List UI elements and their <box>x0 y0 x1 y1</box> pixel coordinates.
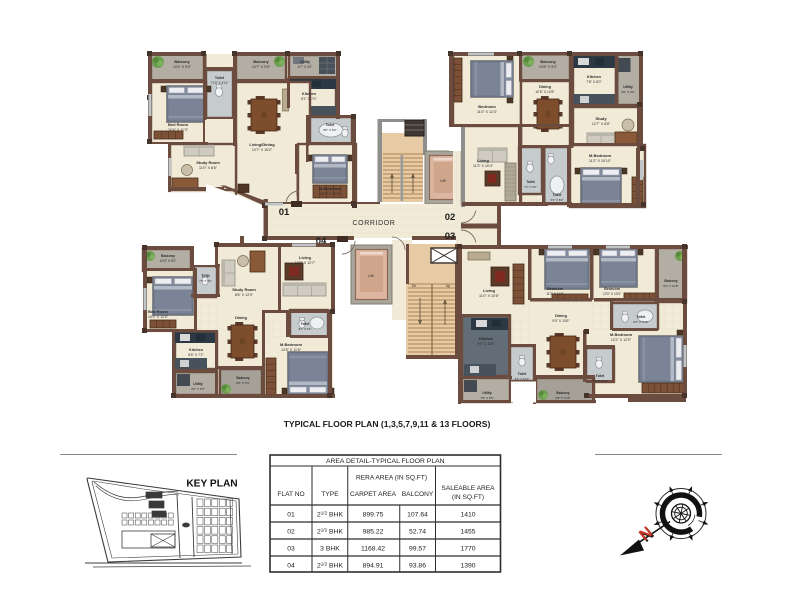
svg-text:3 BHK: 3 BHK <box>320 546 340 553</box>
svg-text:Living: Living <box>483 288 495 293</box>
svg-text:10'8" X 5'0": 10'8" X 5'0" <box>539 65 558 69</box>
svg-text:10'4" X 11'3": 10'4" X 11'3" <box>168 128 189 132</box>
svg-text:9'0" X 13'6": 9'0" X 13'6" <box>552 319 570 323</box>
svg-text:8'1" X 7'0": 8'1" X 7'0" <box>301 97 317 101</box>
svg-text:Bed Room: Bed Room <box>168 122 188 127</box>
svg-text:985.22: 985.22 <box>363 529 384 536</box>
svg-text:6'7" X 4'0": 6'7" X 4'0" <box>298 65 312 69</box>
svg-text:Toilet: Toilet <box>201 274 210 278</box>
svg-text:11'0" X 10'6": 11'0" X 10'6" <box>479 294 500 298</box>
svg-text:7'0" X 5'0": 7'0" X 5'0" <box>199 279 212 283</box>
svg-text:Up: Up <box>446 284 451 288</box>
svg-text:Utility: Utility <box>482 391 492 395</box>
svg-text:03: 03 <box>287 546 295 553</box>
svg-text:CARPET AREA: CARPET AREA <box>350 491 397 498</box>
svg-text:107.64: 107.64 <box>407 512 428 519</box>
svg-text:894.91: 894.91 <box>363 563 384 570</box>
svg-text:01: 01 <box>279 207 290 218</box>
svg-text:7'8" X 8'0": 7'8" X 8'0" <box>586 80 602 84</box>
svg-text:1390: 1390 <box>460 563 475 570</box>
svg-text:Dn: Dn <box>412 284 417 288</box>
svg-text:11'2" X 10'10": 11'2" X 10'10" <box>589 159 612 163</box>
svg-text:1770: 1770 <box>460 546 475 553</box>
svg-text:12'6" X 11'6": 12'6" X 11'6" <box>281 348 302 352</box>
svg-text:Kitchen: Kitchen <box>587 75 602 79</box>
svg-text:8'0" X 5'10": 8'0" X 5'10" <box>633 320 648 324</box>
svg-text:12'7" X 8'8": 12'7" X 8'8" <box>592 122 611 126</box>
svg-text:Toilet: Toilet <box>518 372 527 376</box>
svg-text:Balcony: Balcony <box>161 254 175 258</box>
svg-text:10'8" X 12'8": 10'8" X 12'8" <box>535 90 555 94</box>
svg-text:Dining: Dining <box>235 316 247 320</box>
svg-text:Bedroom: Bedroom <box>604 287 620 291</box>
svg-text:02: 02 <box>445 212 456 223</box>
svg-text:5'0" X 4'0": 5'0" X 4'0" <box>621 90 635 94</box>
svg-text:Balcony: Balcony <box>253 59 269 64</box>
svg-text:Bedroom: Bedroom <box>547 287 563 291</box>
svg-text:8'6" X 12'0": 8'6" X 12'0" <box>235 293 254 297</box>
svg-text:12'0" X 11'0": 12'0" X 11'0" <box>320 192 341 196</box>
svg-text:04: 04 <box>287 563 295 570</box>
svg-text:5'6" X 5'10": 5'6" X 5'10" <box>515 377 530 381</box>
svg-text:12'0" X 10'0": 12'0" X 10'0" <box>603 292 621 296</box>
svg-text:Study: Study <box>595 116 607 121</box>
svg-text:Utility: Utility <box>623 85 633 89</box>
svg-text:Bedroom: Bedroom <box>478 104 496 109</box>
svg-text:8'0" X 5'0": 8'0" X 5'0" <box>323 128 337 132</box>
svg-text:AREA DETAIL-TYPICAL FLOOR PLAN: AREA DETAIL-TYPICAL FLOOR PLAN <box>326 458 445 465</box>
svg-text:1168.42: 1168.42 <box>361 546 385 553</box>
svg-text:1410: 1410 <box>460 512 475 519</box>
svg-text:Balcony: Balcony <box>236 376 249 380</box>
svg-text:M.Bedroom: M.Bedroom <box>280 342 302 347</box>
svg-text:7'0" X 5'0": 7'0" X 5'0" <box>524 185 537 189</box>
svg-text:Living/Dining: Living/Dining <box>249 142 275 147</box>
svg-text:Balcony: Balcony <box>540 59 556 64</box>
svg-text:11'3" X 10'4": 11'3" X 10'4" <box>473 164 494 168</box>
svg-text:10'4" X 5'0": 10'4" X 5'0" <box>173 65 192 69</box>
svg-text:Dining: Dining <box>555 314 567 318</box>
svg-text:10'7" X 16'2": 10'7" X 16'2" <box>252 148 273 152</box>
svg-text:KEY PLAN: KEY PLAN <box>186 479 237 490</box>
svg-text:Utility: Utility <box>193 382 203 386</box>
svg-text:Utility: Utility <box>300 60 310 64</box>
svg-text:TYPE: TYPE <box>321 491 339 498</box>
svg-text:Balcony: Balcony <box>664 279 677 283</box>
svg-text:Toilet: Toilet <box>215 76 225 80</box>
svg-text:Toilet: Toilet <box>526 180 535 184</box>
svg-text:Living: Living <box>299 255 311 260</box>
svg-text:Bed Room: Bed Room <box>148 309 168 314</box>
svg-text:Lift: Lift <box>368 273 374 278</box>
svg-text:8'6" X 7'2": 8'6" X 7'2" <box>188 353 204 357</box>
svg-text:TYPICAL FLOOR PLAN (1,3,5,7,9,: TYPICAL FLOOR PLAN (1,3,5,7,9,11 & 13 FL… <box>284 419 491 429</box>
svg-text:12'8" X 12'7": 12'8" X 12'7" <box>295 261 316 265</box>
svg-text:Toilet: Toilet <box>326 123 336 127</box>
svg-text:899.75: 899.75 <box>363 512 384 519</box>
svg-text:10'0" X 11'0": 10'0" X 11'0" <box>148 315 169 319</box>
svg-text:Toilet: Toilet <box>637 315 647 319</box>
svg-text:8'5" X 5'0": 8'5" X 5'0" <box>236 381 250 385</box>
svg-text:Balcony: Balcony <box>174 59 190 64</box>
svg-text:5'0" X 8'0": 5'0" X 8'0" <box>550 198 563 202</box>
svg-text:93.86: 93.86 <box>409 563 426 570</box>
svg-text:Dining: Dining <box>539 85 551 89</box>
svg-text:BALCONY: BALCONY <box>402 491 434 498</box>
svg-text:FLAT NO: FLAT NO <box>277 491 304 498</box>
svg-text:10'7" X 5'5": 10'7" X 5'5" <box>252 65 271 69</box>
svg-text:9'5" X 5'6": 9'5" X 5'6" <box>191 387 205 391</box>
svg-text:9'0" X 11'6": 9'0" X 11'6" <box>477 342 495 346</box>
svg-text:Balcony: Balcony <box>556 391 569 395</box>
svg-text:Kitchen: Kitchen <box>479 337 494 341</box>
svg-text:Kitchen: Kitchen <box>302 92 317 96</box>
svg-text:52.74: 52.74 <box>409 529 426 536</box>
svg-text:(IN SQ.FT): (IN SQ.FT) <box>452 494 484 501</box>
svg-text:Lift: Lift <box>440 178 446 183</box>
svg-text:11'0" X 12'3": 11'0" X 12'3" <box>477 110 498 114</box>
svg-text:M.Bedroom: M.Bedroom <box>589 153 611 158</box>
svg-text:M.Bedroom: M.Bedroom <box>610 332 632 337</box>
svg-text:RERA AREA (IN SQ.FT): RERA AREA (IN SQ.FT) <box>356 475 427 482</box>
svg-text:Toilet: Toilet <box>596 374 605 378</box>
svg-text:8'4" X 5'2": 8'4" X 5'2" <box>298 327 311 331</box>
svg-text:SALEABLE AREA: SALEABLE AREA <box>441 485 495 492</box>
svg-text:10'3" X 5'0": 10'3" X 5'0" <box>160 259 176 263</box>
svg-text:Toilet: Toilet <box>553 193 562 197</box>
svg-text:1455: 1455 <box>460 529 475 536</box>
svg-text:5'6" X 5'10": 5'6" X 5'10" <box>593 379 608 383</box>
svg-text:99.57: 99.57 <box>409 546 426 553</box>
svg-text:7'8" X 5'0": 7'8" X 5'0" <box>480 396 494 400</box>
svg-text:11'3" X 11'6": 11'3" X 11'6" <box>546 292 564 296</box>
svg-text:Living: Living <box>477 158 489 163</box>
svg-text:M.Bedroom: M.Bedroom <box>319 186 341 191</box>
svg-text:Kitchen: Kitchen <box>189 348 204 352</box>
svg-text:12'2" X 12'0": 12'2" X 12'0" <box>611 338 632 342</box>
svg-text:Study Room: Study Room <box>232 287 256 292</box>
svg-text:5'0" X 10'8": 5'0" X 10'8" <box>663 284 678 288</box>
svg-text:01: 01 <box>287 512 295 519</box>
svg-text:7'10" X 4'11": 7'10" X 4'11" <box>211 81 229 85</box>
svg-text:11'0" X 8'6": 11'0" X 8'6" <box>199 166 218 170</box>
svg-text:03: 03 <box>445 231 456 242</box>
svg-text:02: 02 <box>287 529 295 536</box>
svg-text:Study Room: Study Room <box>196 160 220 165</box>
svg-text:CORRIDOR: CORRIDOR <box>353 220 396 227</box>
svg-text:9'8" X 5'10": 9'8" X 5'10" <box>555 396 570 400</box>
svg-text:Toilet: Toilet <box>301 322 310 326</box>
